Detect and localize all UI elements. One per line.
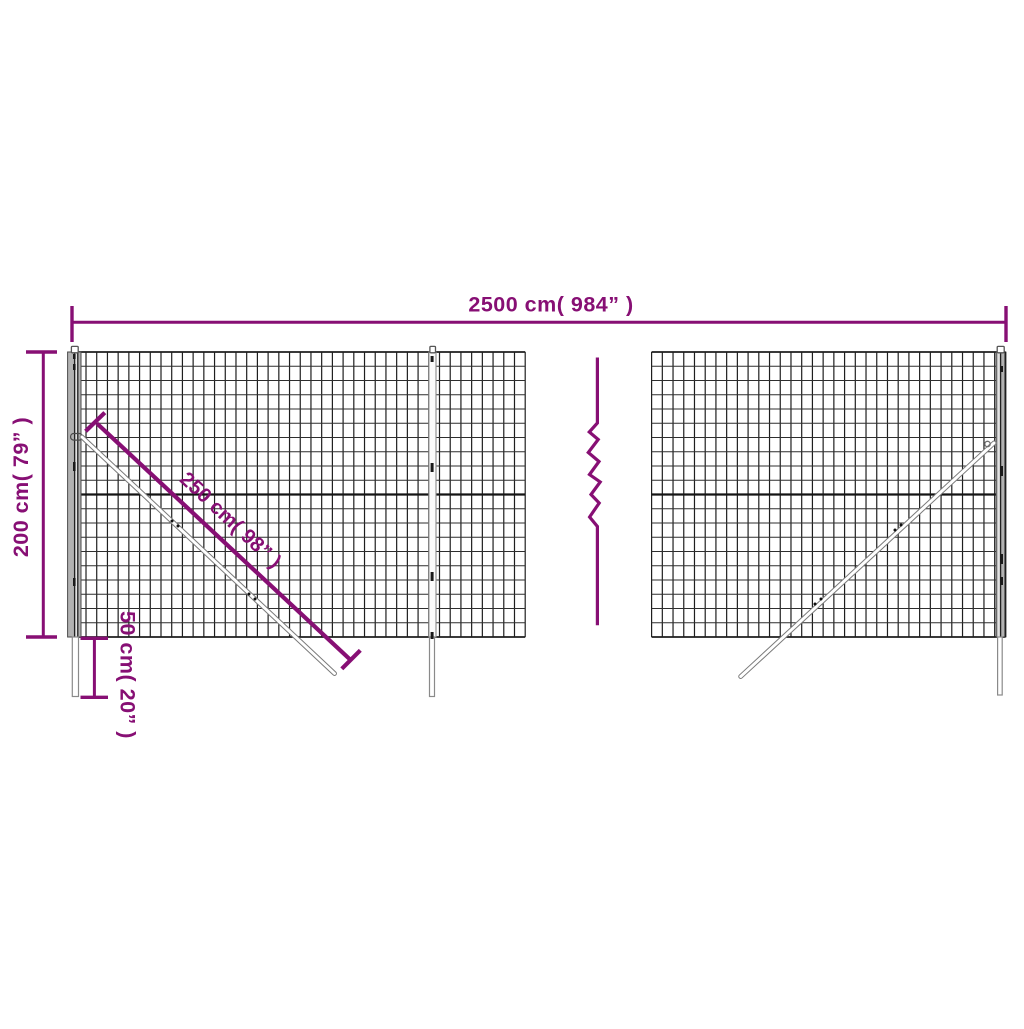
svg-text:2500 cm( 984” ): 2500 cm( 984” ) [468,293,633,317]
svg-text:50 cm( 20” ): 50 cm( 20” ) [116,611,140,739]
svg-text:200 cm( 79” ): 200 cm( 79” ) [9,417,33,557]
